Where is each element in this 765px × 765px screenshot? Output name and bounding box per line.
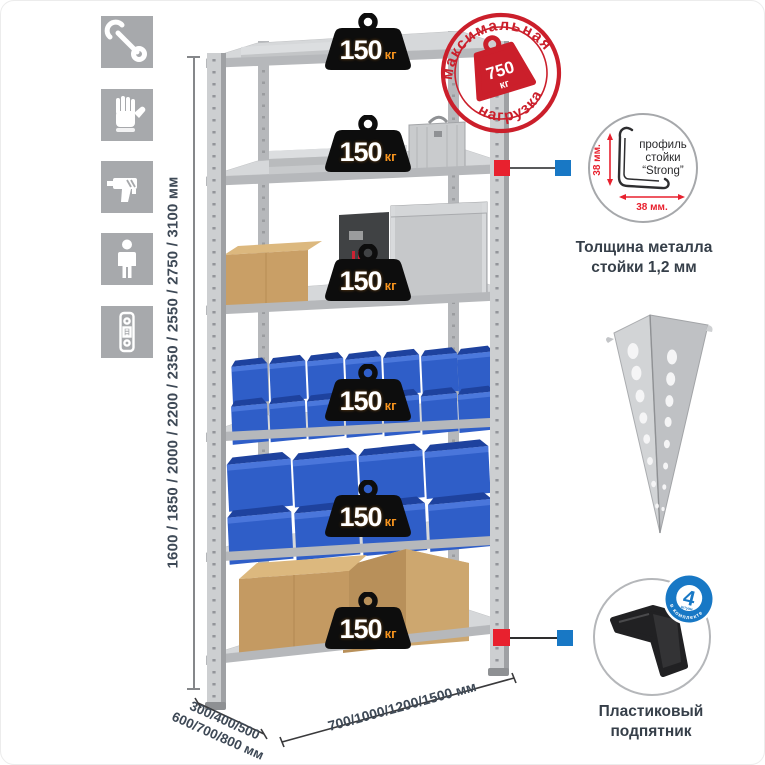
cardboard-box [224, 241, 322, 307]
svg-text:стойки: стойки [645, 152, 680, 164]
profile-caption: Толщина металла стойки 1,2 мм [559, 238, 729, 279]
load-unit: кг [385, 398, 397, 413]
load-unit: кг [385, 626, 397, 641]
perforated-post-icon [101, 306, 153, 358]
marker-red-bottom [493, 629, 510, 646]
shelf-load-badge-4: 150кг [322, 364, 414, 424]
load-value: 150 [340, 35, 382, 65]
connector-line-top [501, 167, 563, 169]
shelf-load-badge-3: 150кг [322, 244, 414, 304]
corner-post-image [586, 301, 751, 546]
load-unit: кг [385, 514, 397, 529]
height-tick-top [187, 56, 200, 58]
wrench-icon [101, 16, 153, 68]
profile-detail-circle: 38 мм. 38 мм. профиль стойки “Strong” [586, 111, 701, 226]
shelf-load-badge-2: 150кг [322, 115, 414, 175]
load-value: 150 [340, 614, 382, 644]
shelf-load-badge-6: 150кг [322, 592, 414, 652]
kit-count-badge: 4 штуки в комплекте [662, 572, 716, 626]
foot-caption-line2: подпятник [610, 723, 691, 740]
height-dimension-label: 1600 / 1850 / 2000 / 2200 / 2350 / 2550 … [165, 73, 182, 673]
drill-icon [101, 161, 153, 213]
gloves-icon [101, 89, 153, 141]
marker-red-top [494, 160, 510, 176]
profile-caption-line2: стойки 1,2 мм [591, 259, 696, 276]
load-value: 150 [340, 502, 382, 532]
svg-text:профиль: профиль [639, 139, 687, 151]
height-dimension-line [193, 57, 195, 689]
foot-caption-line1: Пластиковый [599, 703, 704, 720]
foot-caption: Пластиковый подпятник [573, 702, 729, 743]
connector-line-bottom [501, 637, 565, 639]
height-tick-bottom [187, 688, 200, 690]
dim-horizontal-label: 38 мм. [636, 202, 668, 213]
infographic-root: 1600 / 1850 / 2000 / 2200 / 2350 / 2550 … [0, 0, 765, 765]
person-icon [101, 233, 153, 285]
svg-text:“Strong”: “Strong” [642, 165, 684, 177]
load-unit: кг [385, 47, 397, 62]
load-value: 150 [340, 137, 382, 167]
load-unit: кг [385, 149, 397, 164]
profile-caption-line1: Толщина металла [576, 239, 713, 256]
shelf-load-badge-5: 150кг [322, 480, 414, 540]
marker-blue-bottom [557, 630, 573, 646]
dim-vertical-label: 38 мм. [592, 144, 603, 176]
marker-blue-top [555, 160, 571, 176]
max-load-stamp: максимальная нагрузка 750 кг [435, 7, 567, 139]
shelf-load-badge-1: 150кг [322, 13, 414, 73]
profile-label: профиль стойки “Strong” [639, 139, 687, 177]
load-unit: кг [385, 278, 397, 293]
load-value: 150 [340, 386, 382, 416]
load-value: 150 [340, 266, 382, 296]
